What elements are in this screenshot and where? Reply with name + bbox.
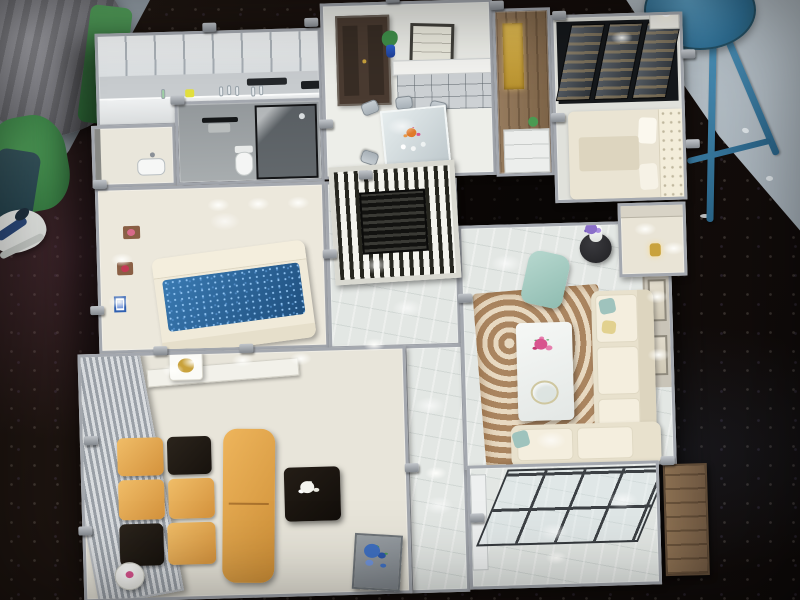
kitchen-appliance xyxy=(301,80,323,89)
gold-cushion xyxy=(118,479,165,520)
room-balcony xyxy=(467,460,662,589)
blue-bed xyxy=(151,239,317,354)
screen-dark-center xyxy=(359,189,429,255)
apartment-model xyxy=(54,0,710,600)
tufted-headboard xyxy=(658,109,684,198)
dining-chair xyxy=(360,99,381,117)
wash-basin xyxy=(137,158,165,176)
master-bed xyxy=(568,109,684,200)
towel xyxy=(208,123,230,133)
room-master-bedroom xyxy=(550,12,687,204)
wall-shelf xyxy=(123,226,140,239)
faucet xyxy=(150,152,155,157)
wardrobe xyxy=(556,19,678,104)
photo-canvas xyxy=(0,0,800,600)
white-flower-arrangement xyxy=(300,481,314,493)
wall-shelf xyxy=(117,262,133,275)
entry-door xyxy=(335,15,391,106)
miniature-bottle xyxy=(227,85,231,95)
shower-head xyxy=(299,113,305,119)
gold-sofa xyxy=(117,436,219,571)
room-pantry-wall xyxy=(492,7,555,177)
glass-door-panels xyxy=(476,465,662,546)
room-utility xyxy=(91,124,177,188)
white-base-cabinet xyxy=(503,128,550,173)
pink-flower-arrangement xyxy=(534,338,547,349)
shower-enclosure xyxy=(255,104,319,180)
towel-rack xyxy=(202,117,238,123)
miniature-bottle xyxy=(259,85,263,95)
glass-t tray xyxy=(530,380,559,405)
gold-chaise-bench xyxy=(222,429,275,583)
gold-cushion xyxy=(167,522,216,565)
toilet xyxy=(235,152,254,176)
blue-flowers xyxy=(364,543,381,558)
small-plant xyxy=(528,117,538,127)
yellow-pillow xyxy=(601,320,616,334)
kitchen-upper-cabinets xyxy=(98,31,319,77)
room-corridor xyxy=(403,344,470,594)
room-dressing-niche xyxy=(617,201,687,277)
pillow xyxy=(638,117,657,144)
black-cushion xyxy=(167,436,212,475)
gold-ornament xyxy=(650,243,661,256)
sofa-cushion xyxy=(577,426,634,460)
gold-cushion xyxy=(168,478,215,519)
sneaker-stripe xyxy=(0,215,28,241)
room-second-bedroom xyxy=(95,182,330,354)
door-knob xyxy=(362,59,366,63)
yellow-kitchen-item xyxy=(185,89,194,97)
gold-cushion xyxy=(117,437,164,476)
miniature-bottle xyxy=(235,86,239,96)
leaning-wall-art xyxy=(409,23,454,64)
glass-door-edge xyxy=(94,129,102,185)
glass-dining-table xyxy=(380,105,451,169)
floor-debris xyxy=(766,176,773,181)
blue-picture-frame xyxy=(114,296,126,312)
table-glasses xyxy=(401,144,406,149)
kitchen-cooktop xyxy=(247,78,287,86)
blue-flower-planter xyxy=(352,533,403,592)
miniature-bottle xyxy=(251,86,255,96)
room-bathroom xyxy=(174,98,324,186)
coffee-table xyxy=(516,322,575,422)
room-dining xyxy=(320,0,497,180)
slatted-partition-screen xyxy=(328,160,461,286)
black-coffee-table xyxy=(284,466,341,522)
miniature-bottle xyxy=(161,89,165,99)
niche-shelf xyxy=(621,205,683,219)
gold-display-niche xyxy=(502,23,524,90)
black-cushion xyxy=(119,523,164,566)
blue-vase xyxy=(386,45,395,58)
bed-runner xyxy=(579,136,640,172)
miniature-bottle xyxy=(219,86,223,96)
wood-sideboard xyxy=(663,463,710,576)
pillow xyxy=(639,163,659,190)
side-table-gold-ornament xyxy=(168,350,203,381)
sofa-cushion xyxy=(596,346,639,395)
